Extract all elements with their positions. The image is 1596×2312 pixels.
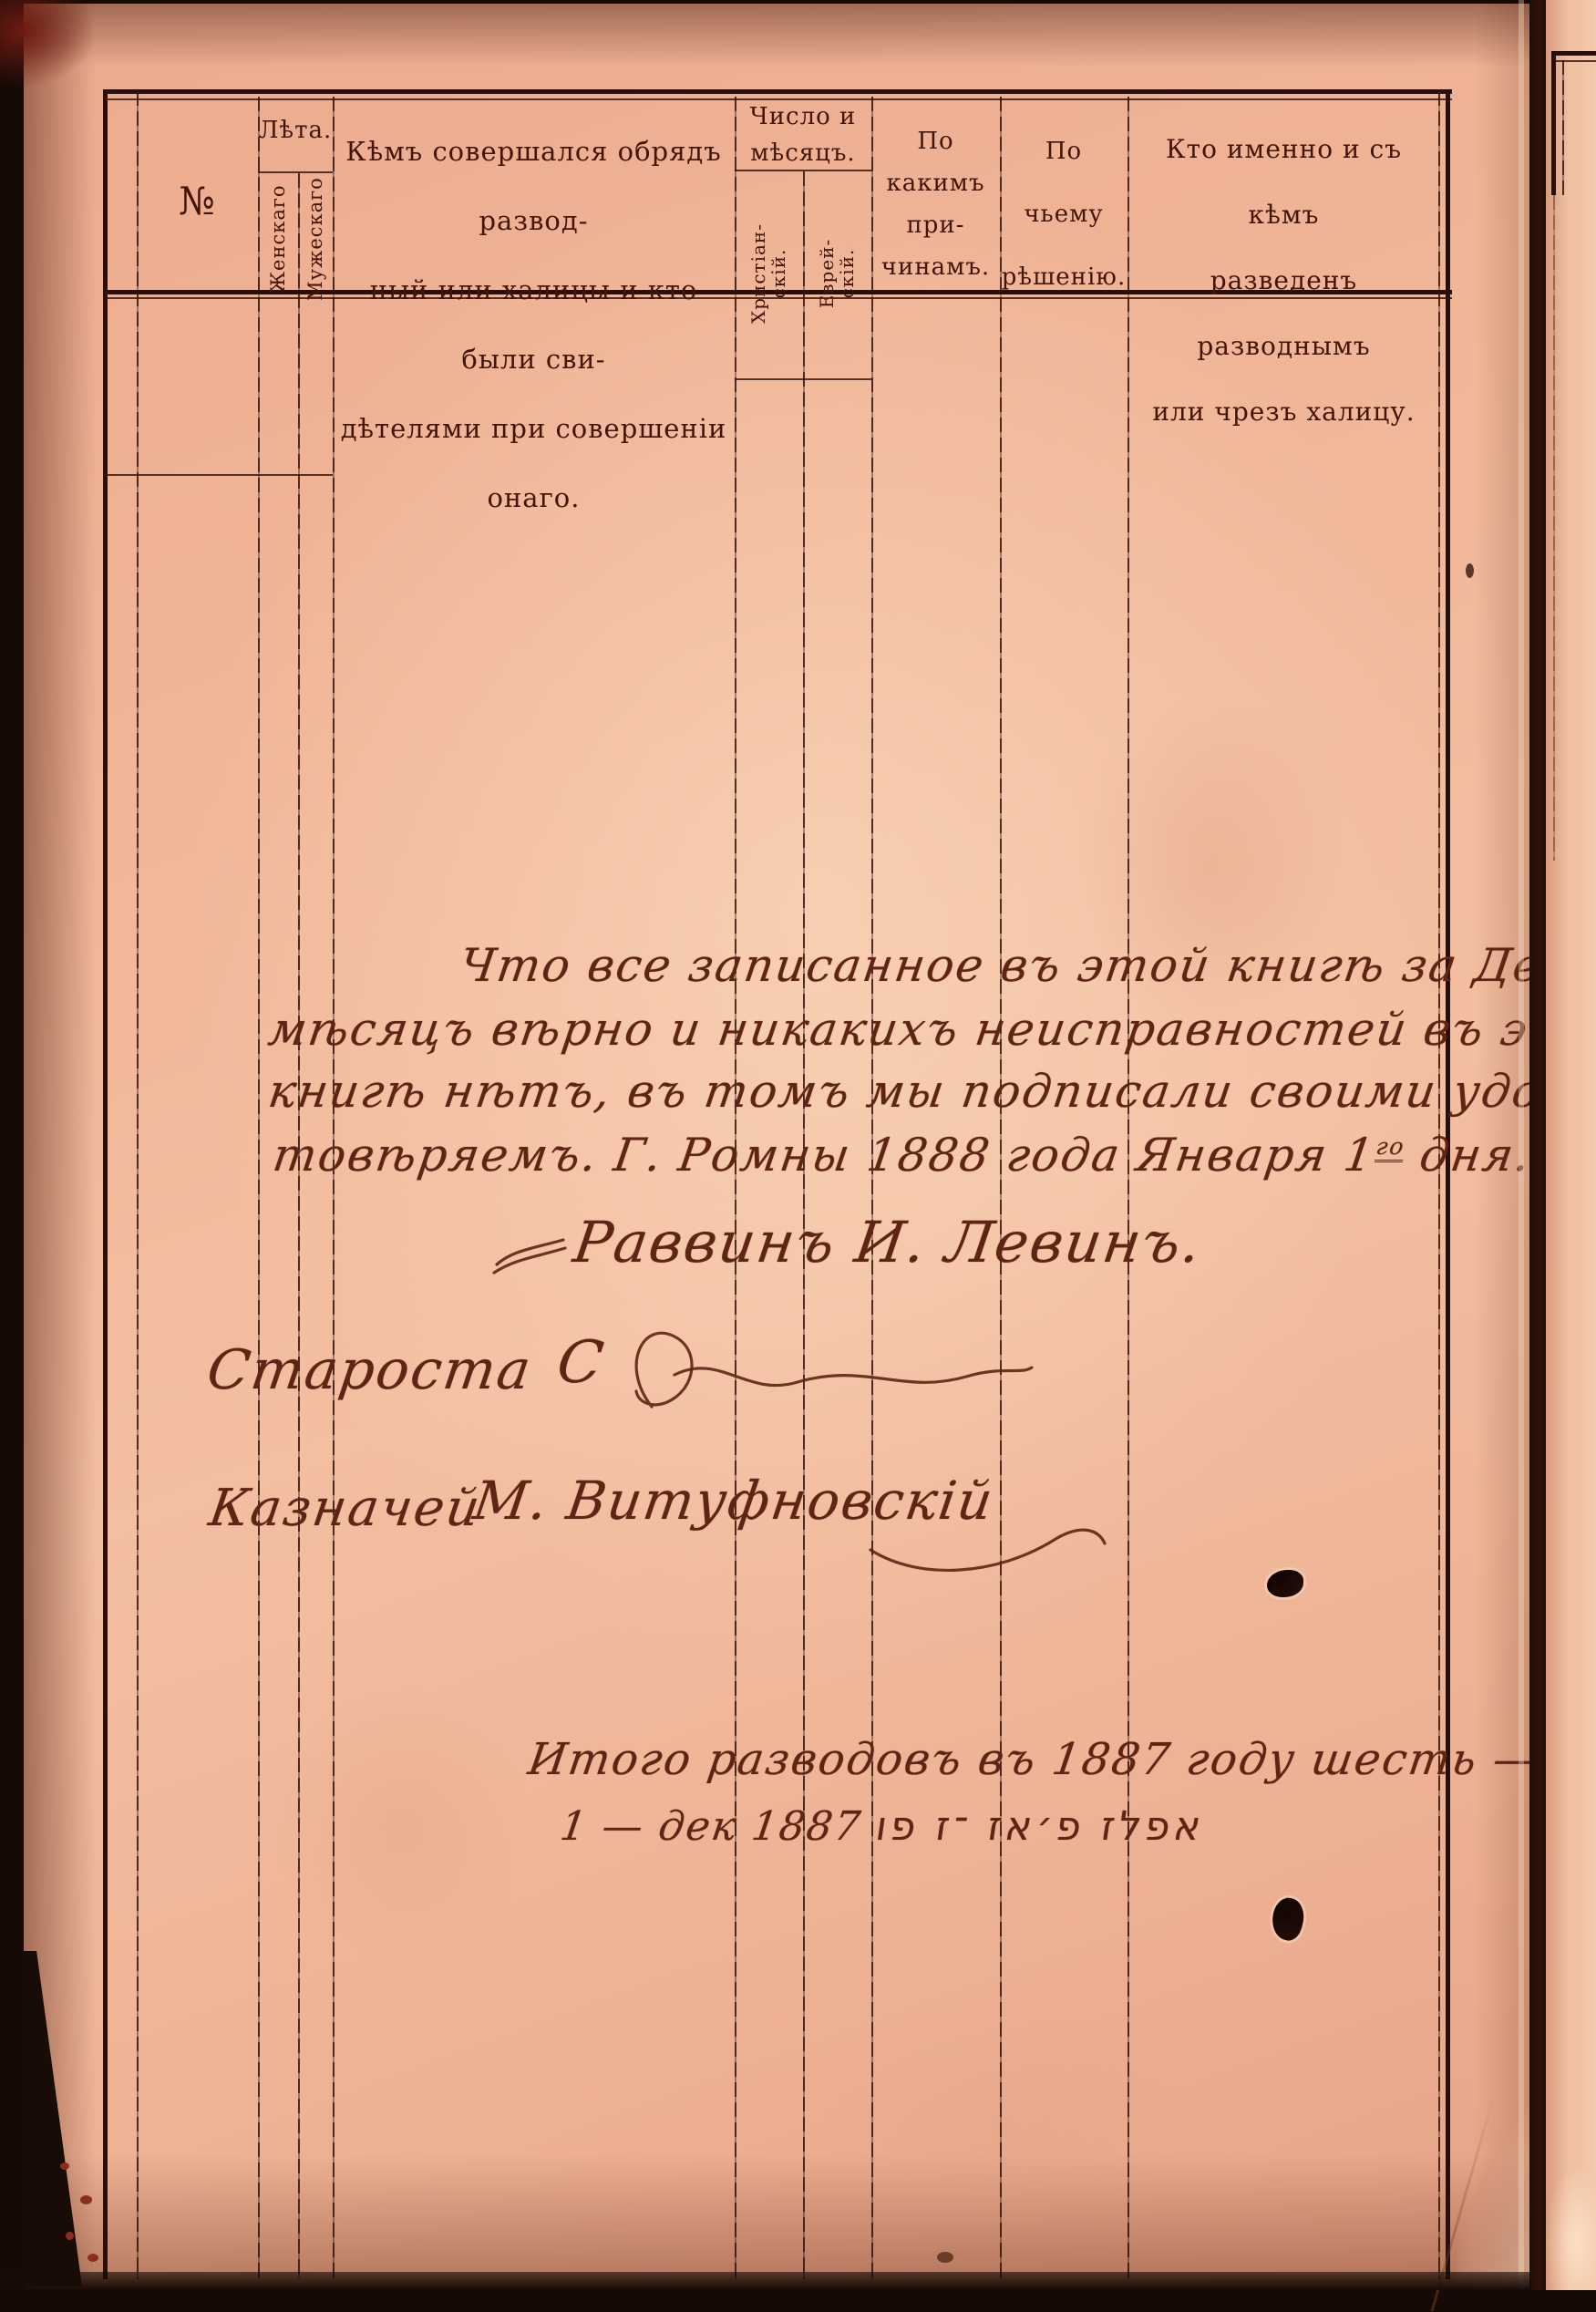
column-line-reshenie-left (1000, 97, 1002, 2279)
facing-page-border-top-inner (1555, 60, 1596, 62)
column-line-leta-left (258, 97, 260, 2279)
treasurer-signature-flourish (866, 1509, 1112, 1586)
subheader-zhenskago: Женскаго (267, 170, 289, 307)
signature-flourish (492, 1233, 570, 1276)
column-header-chislo: Число и мѣсяцъ. (735, 98, 871, 171)
column-header-kto: Кто именно и съ кѣмъ разведенъ разводным… (1127, 117, 1440, 445)
leta-close-rule (103, 474, 333, 476)
scan-bottom-shadow (0, 2272, 1531, 2290)
no-label: № (179, 179, 216, 223)
scanned-register-page: { "table": { "no": "№", "leta": { "label… (0, 0, 1596, 2290)
starosta-signature: С (553, 1329, 609, 1397)
facing-page-border-top (1555, 51, 1596, 56)
kem-line3: дѣтелями при совершеніи онаго. (333, 394, 735, 532)
column-line-chislo-left (735, 97, 736, 2279)
paper-speck (80, 2195, 92, 2204)
chislo-line2: мѣсяцъ. (735, 135, 871, 171)
column-line-leta-split (298, 173, 300, 2279)
table-border-left-inner (137, 91, 139, 2279)
column-header-no: № (137, 179, 258, 223)
rabbi-signature: Раввинъ И. Левинъ. (570, 1209, 1207, 1275)
certification-line1: Что все записанное въ этой книгѣ за Дека… (457, 939, 1596, 992)
facing-page-glow (1546, 2170, 1596, 2290)
paper-speck (88, 2254, 98, 2262)
column-header-prichina: По какимъ при- чинамъ. (871, 120, 1000, 288)
subheader-christian: Христіан- скій. (748, 178, 788, 369)
starosta-signature-flourish (602, 1311, 1039, 1439)
ink-speck (1466, 563, 1474, 578)
kem-line1: Кѣмъ совершался обрядъ развод- (333, 117, 735, 255)
kem-line2: ный или халицы и кто были сви- (333, 255, 735, 394)
facing-page-edge (1546, 0, 1596, 2290)
date-note-hebrew: אפלז פ׳אז ־ז פו (873, 1803, 1208, 1850)
leta-label: Лѣта. (259, 117, 333, 144)
yiddish-date-note: 1 — дек 1887 אפלז פ׳אז ־ז פו (557, 1803, 1207, 1850)
date-note-prefix: 1 — дек 1887 (557, 1803, 864, 1850)
page-fold-highlight (1519, 0, 1524, 2290)
table-border-right (1446, 89, 1450, 2279)
facing-page-border-left (1551, 51, 1556, 195)
treasurer-label: Казначей (205, 1479, 485, 1538)
chislo-line1: Число и (735, 98, 871, 135)
paper-speck (60, 2162, 69, 2170)
total-divorces-line: Итого разводовъ въ 1887 году шесть — 6. (525, 1734, 1596, 1785)
column-header-kem: Кѣмъ совершался обрядъ развод- ный или х… (333, 117, 735, 532)
column-header-reshenie: По чьему рѣшенію. (1000, 120, 1127, 309)
certification-line2: мѣсяцъ вѣрно и никакихъ неисправностей в… (265, 1003, 1596, 1056)
ink-speck (937, 2252, 953, 2263)
certification-line4: товѣряемъ. Г. Ромны 1888 года Января 1го… (270, 1129, 1596, 1182)
column-header-leta: Лѣта. (258, 117, 333, 144)
chislo-close-rule (735, 378, 871, 380)
table-border-top (103, 89, 1452, 94)
paper-speck (66, 2232, 74, 2240)
starosta-label: Староста (203, 1338, 536, 1402)
column-line-prichina-left (871, 97, 873, 2279)
date-ordinal-superscript: го (1374, 1133, 1406, 1162)
page-fold-corner (1457, 2106, 1529, 2288)
subheader-muzheskago: Мужескаго (304, 170, 326, 307)
certification-line3: книгѣ нѣтъ, въ томъ мы подписали своими … (265, 1065, 1590, 1118)
facing-page-border-left-inner (1562, 60, 1564, 195)
facing-page-rule (1553, 195, 1555, 861)
page-gutter-shadow (1529, 0, 1546, 2290)
subheader-jewish: Еврей- скій. (817, 178, 857, 369)
scan-corner-blotch (0, 0, 96, 88)
table-border-left (103, 89, 108, 2279)
